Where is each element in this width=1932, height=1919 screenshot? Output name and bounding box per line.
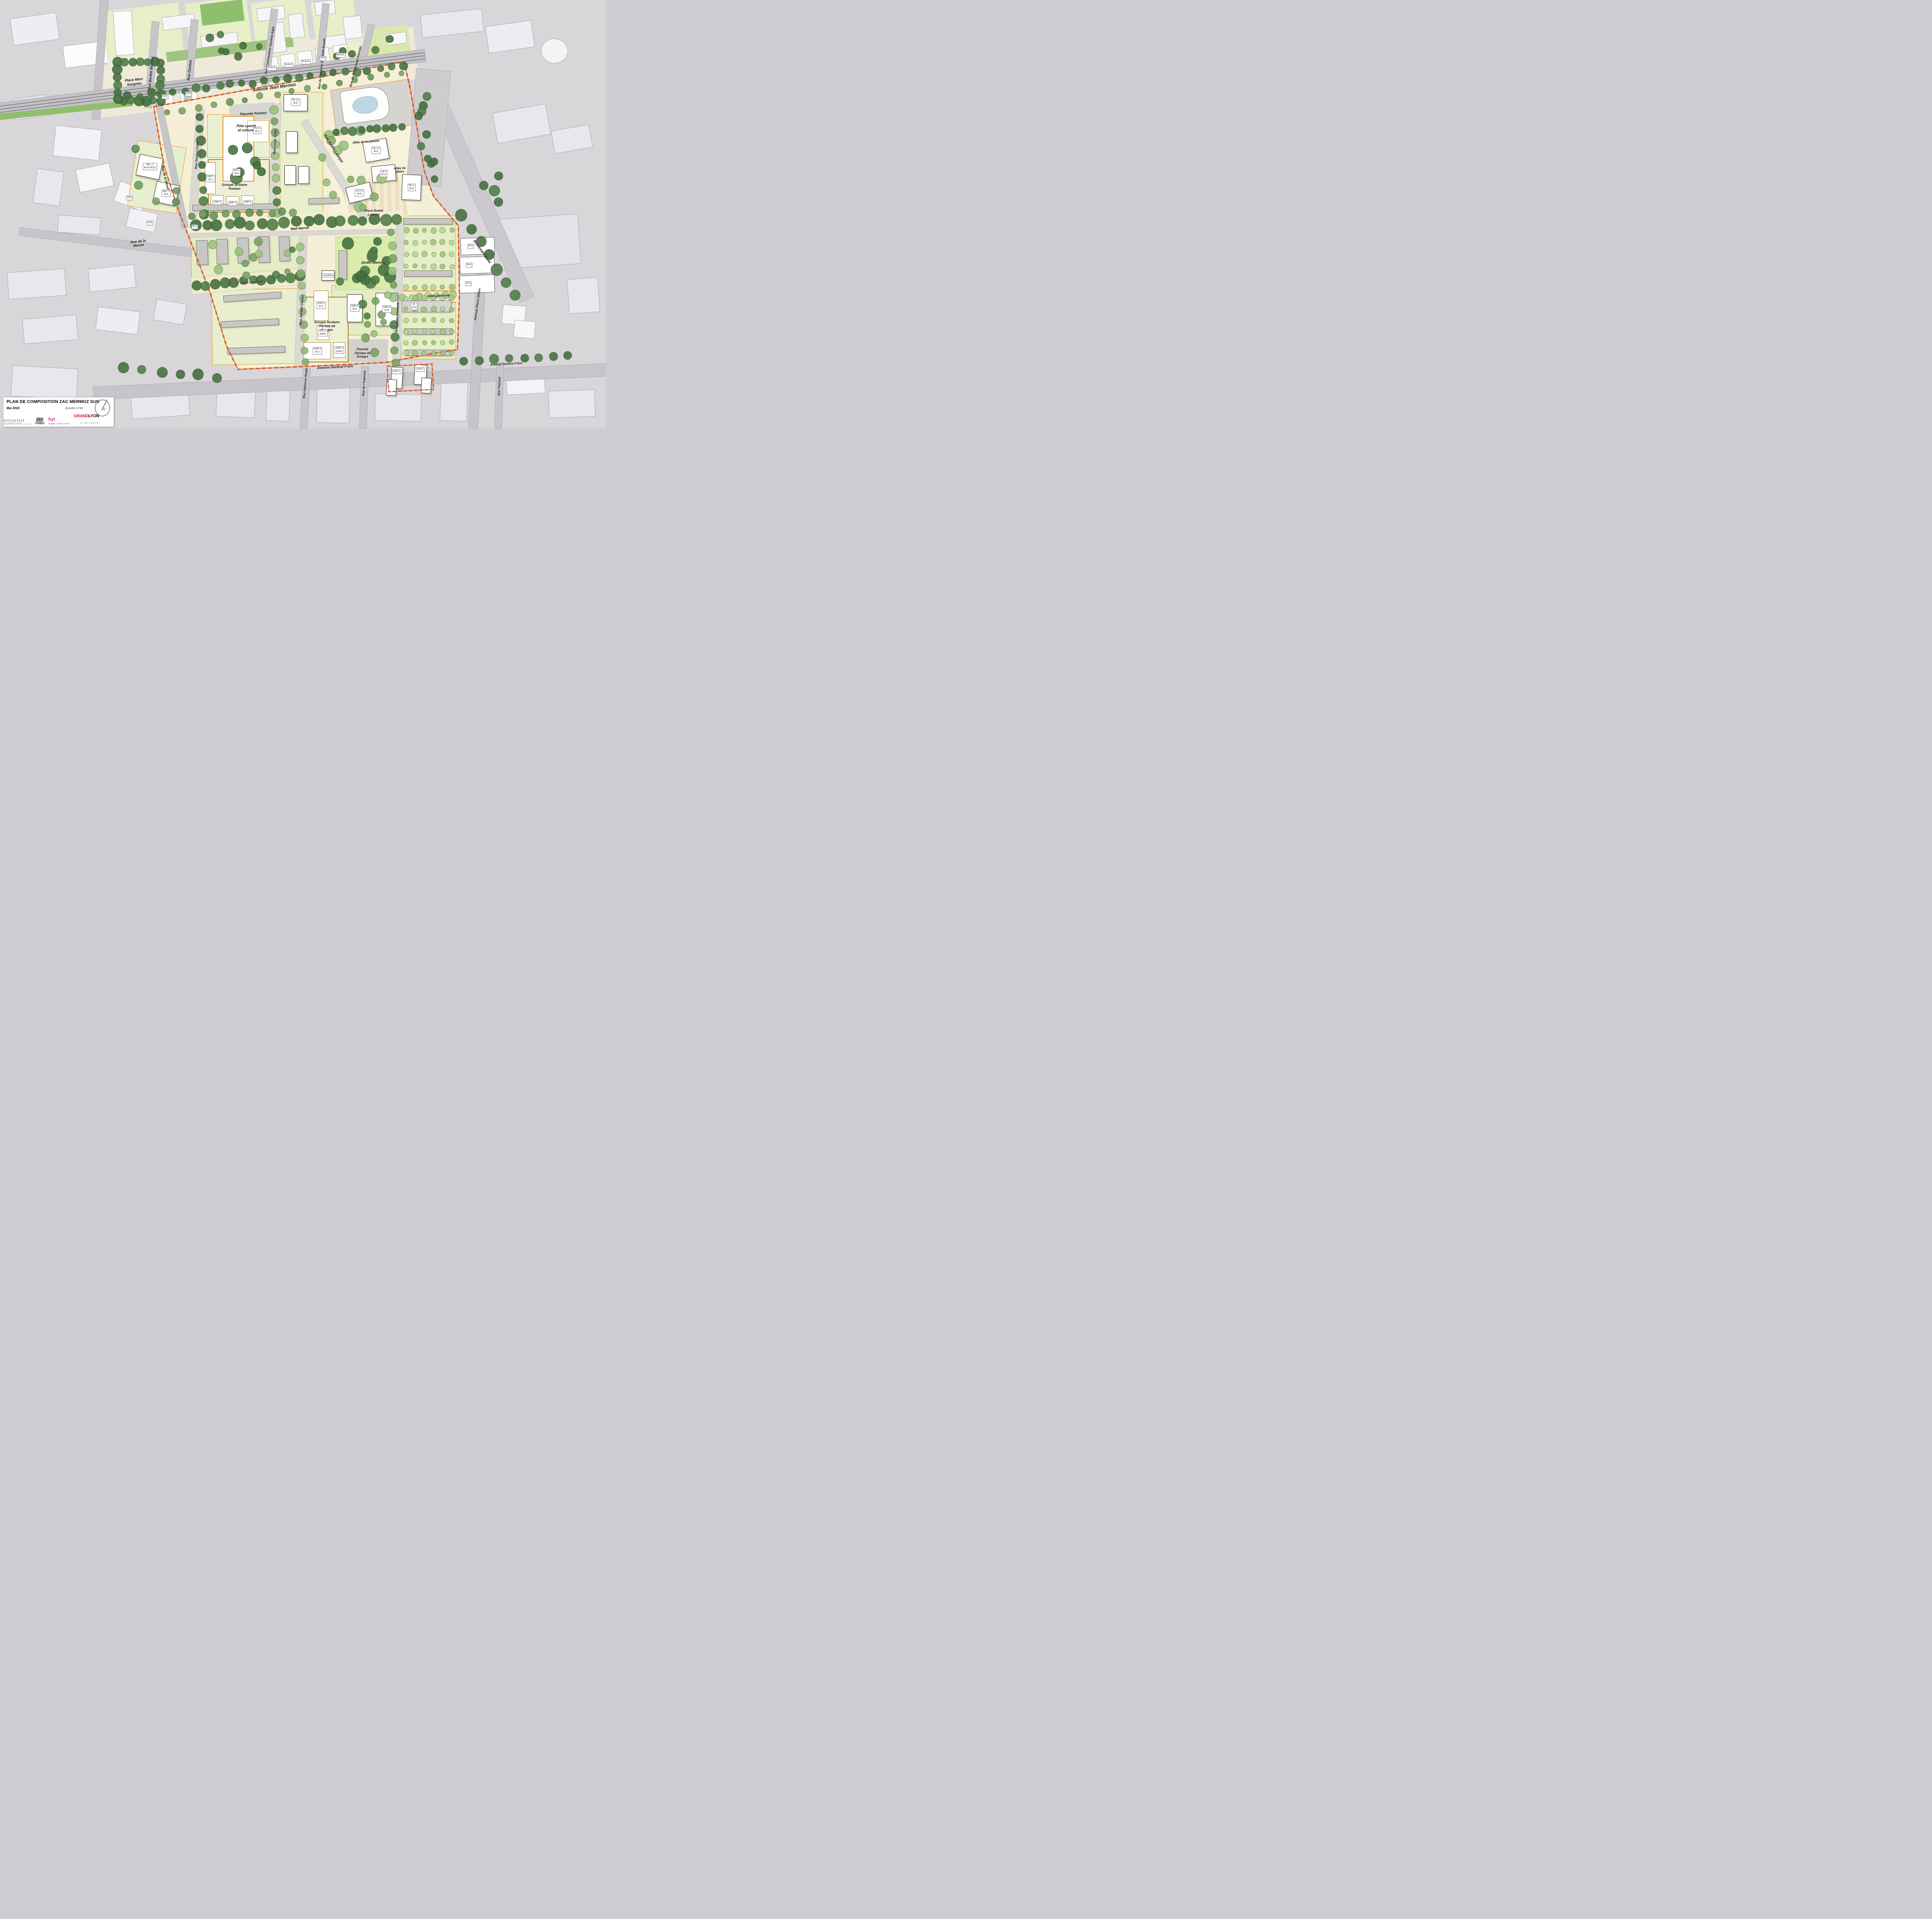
tree-icon: [192, 369, 204, 380]
hyl-logo: hyl Paysagistes, urbanistes, architectes: [48, 418, 70, 425]
lot-label-east-r5: R+5: [467, 244, 474, 248]
tree-icon: [118, 362, 129, 373]
lot-label-chaufferie: Chaufferie: [323, 274, 334, 277]
lot-label-gsp2: GSP 2: [213, 200, 222, 205]
building-bar: [258, 236, 270, 263]
lot-label-east-r4b: R+4: [465, 281, 471, 286]
street-label-allee-pietonne: Allée piétonne: [427, 294, 450, 298]
lot-label-east-r4a: R+4: [466, 263, 472, 267]
place-label-placette-odg: Placette Olympe de Gouges: [355, 348, 371, 359]
tree-icon: [466, 224, 477, 235]
tree-icon: [459, 357, 468, 365]
tree-icon: [534, 354, 543, 362]
existing-building: [485, 20, 535, 53]
existing-building: [11, 365, 78, 400]
lot-label-nord-r44a: R+4+A: [267, 66, 277, 70]
existing-building: [126, 208, 158, 233]
building-bar: [403, 218, 453, 224]
existing-building: [53, 125, 102, 161]
lot-label-tix11: Tix 1.1 R+6: [291, 99, 300, 106]
building-bar: [404, 328, 452, 335]
nord-building: [386, 32, 407, 46]
tribu-text: TRIBU: [35, 422, 44, 425]
lot-label-odg5: OdG 5 R+4: [350, 304, 359, 312]
existing-building: [374, 394, 421, 422]
road-meuse: [19, 227, 192, 257]
tree-icon: [505, 354, 513, 362]
tree-icon: [455, 209, 468, 221]
existing-building: [58, 215, 101, 235]
existing-building: [492, 104, 551, 143]
lot-label-west-r1: R+1: [191, 224, 198, 229]
plan-title: PLAN DE COMPOSITION ZAC MERMOZ SUD: [7, 399, 99, 404]
grandlyon-sub: la métropole: [80, 422, 99, 424]
lot-label-nord-r44c: R+4+A: [301, 59, 311, 64]
lot-east-strip: [401, 216, 456, 359]
existing-building: [10, 12, 60, 46]
lot-label-nord-r6a: R+6: [162, 94, 168, 99]
nord-building: [288, 13, 305, 39]
lot-label-lat2: Lat 2 R+4: [380, 170, 387, 177]
grandlyon-lyon: LYON: [88, 414, 99, 418]
place-label-jardin-mermoz: Jardin Mermoz: [361, 261, 386, 265]
lot-label-gso2: GSO 2 preau: [335, 347, 344, 354]
facility-label-pole-sportif: Pôle sportif et culturel: [236, 124, 256, 133]
tribu-logo: TRIBU: [35, 418, 44, 425]
street-label-thenard: Rue Thénard: [497, 377, 502, 396]
existing-building: [551, 124, 593, 154]
grandlyon-logo: GRANDLYON la métropole: [74, 413, 99, 425]
plan-date: Mai 2023: [7, 406, 19, 410]
building-tix2: [286, 131, 298, 153]
dumetier-logo: DUMETIER DESIGN: [4, 419, 31, 425]
lot-label-gsp1: GSP 1 R+1: [206, 175, 215, 182]
dome-building: [541, 39, 568, 63]
plan-composition-map: Avenue Jean Mermoz Rue Berthe Morisot Ru…: [0, 0, 606, 428]
grandlyon-grand: GRAND: [74, 414, 88, 418]
lot-label-e-r4: E R+4: [411, 303, 417, 310]
building-bar: [216, 238, 228, 264]
street-label-general-frere-east: Avenue Général Frère: [490, 361, 522, 367]
existing-building: [32, 168, 64, 207]
road-parking-east: [406, 68, 451, 187]
tree-icon: [137, 365, 146, 374]
lot-label-gso1-preau: GSO 1 préau: [318, 329, 328, 337]
street-label-allee-metro: Allée du Métro: [394, 166, 406, 174]
hyl-text: hyl: [48, 416, 55, 422]
facility-label-gs-pasteur: Groupe Scolaire Pasteur: [222, 183, 247, 190]
building-tix3: [284, 165, 296, 185]
building-tix4: [298, 166, 309, 184]
lot-label-psc1-bottom: Psc 1 R+4: [232, 169, 240, 176]
tree-icon: [489, 185, 500, 196]
dumetier-text: DUMETIER: [4, 422, 22, 425]
tree-icon: [176, 370, 185, 379]
lot-label-gnf2: GnF 2: [416, 367, 425, 372]
building-gnf2b: [421, 377, 432, 393]
tree-icon: [549, 352, 558, 361]
existing-building: [75, 163, 114, 192]
tribu-grid-icon: [36, 418, 43, 422]
existing-building: [22, 314, 78, 344]
tree-icon: [494, 172, 503, 180]
tree-icon: [563, 351, 572, 360]
lot-label-gsp3: GSP 3: [228, 201, 237, 206]
building-bar: [237, 237, 249, 263]
existing-building: [567, 277, 600, 314]
existing-building: [7, 269, 67, 299]
building-gnf1b: [386, 379, 397, 396]
lot-label-gso3: GSO 3 R+2: [313, 347, 322, 355]
existing-building: [548, 389, 595, 418]
lot-label-nord-r44b: R+4+A: [284, 63, 294, 67]
building-mermoz-edge: [338, 250, 347, 280]
existing-building: [513, 320, 536, 339]
lot-label-mos2: Mos. 2 R+5+VETC: [143, 163, 157, 170]
existing-building: [153, 299, 187, 325]
north-letter: N: [103, 407, 105, 411]
building-slab: [308, 197, 340, 205]
lot-label-west-r5b: R+5: [146, 221, 153, 225]
lot-label-gso1: GSO 1 R+2: [316, 302, 326, 309]
lot-label-gnf1: GnF 1: [393, 369, 401, 374]
building-bar: [196, 240, 208, 265]
lot-label-pin1: Pin 1 R+6: [408, 184, 415, 191]
nord-building: [343, 15, 363, 39]
lot-label-west-r5a: R+5: [126, 195, 133, 200]
tree-icon: [157, 367, 168, 378]
dumetier-sub: DESIGN: [23, 423, 31, 425]
lot-label-mos3: Mos. 3 R+4: [162, 190, 171, 197]
existing-building: [88, 264, 136, 292]
tree-icon: [494, 197, 503, 207]
building-bar: [404, 270, 452, 277]
dumetier-barcode-icon: [4, 419, 24, 422]
building-e: [402, 301, 451, 312]
building-bar: [405, 350, 451, 356]
plan-scale: Echelle 1/750: [65, 406, 83, 410]
lot-label-odg4: OdG 4 R+6: [382, 306, 391, 313]
lot-label-psc1-top: Psc 1 R+2: [253, 127, 261, 134]
building-bar: [279, 236, 290, 262]
lot-label-nord-r5: R+5: [320, 56, 326, 61]
place-label-andre-latarjet: Place André Latarjet: [364, 209, 383, 216]
existing-building: [95, 307, 140, 335]
nord-building: [113, 10, 134, 56]
existing-building: [420, 8, 484, 38]
lot-label-nord-r55a: R+5+A: [336, 53, 346, 58]
lot-label-lat11: Lat 1.1 R+3: [371, 147, 381, 154]
logos-row: DUMETIER DESIGN TRIBU hyl Paysagistes, u…: [4, 416, 111, 425]
lot-label-lat12: Lat 1.2 R+5: [355, 189, 364, 197]
hyl-sub: Paysagistes, urbanistes, architectes: [48, 423, 70, 425]
lot-label-gsp4: GSP 4: [243, 200, 252, 205]
lot-label-nord-r6b: R+6: [185, 92, 192, 96]
